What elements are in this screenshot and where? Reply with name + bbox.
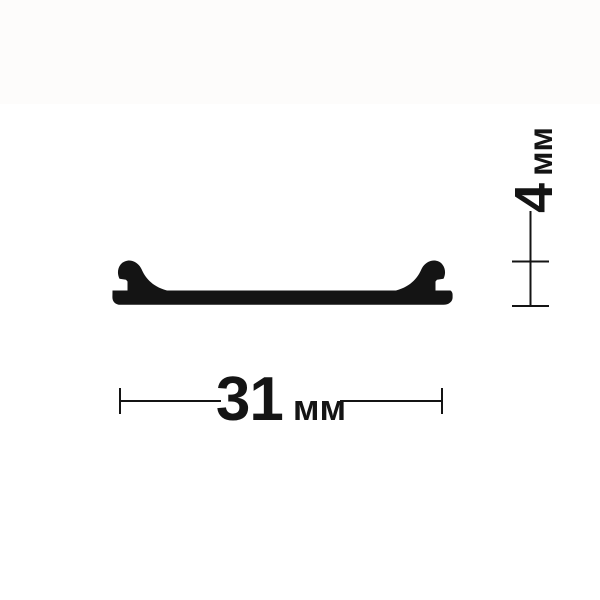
width-dimension-unit: мм bbox=[293, 387, 346, 428]
height-dimension-unit: мм bbox=[522, 127, 559, 176]
height-dimension-value: 4 bbox=[504, 183, 564, 213]
width-dimension-value: 31 bbox=[216, 365, 283, 434]
top-shade-band bbox=[0, 0, 600, 104]
technical-drawing: 31мм 4мм bbox=[0, 0, 600, 600]
drawing-canvas: 31мм 4мм bbox=[0, 0, 600, 600]
